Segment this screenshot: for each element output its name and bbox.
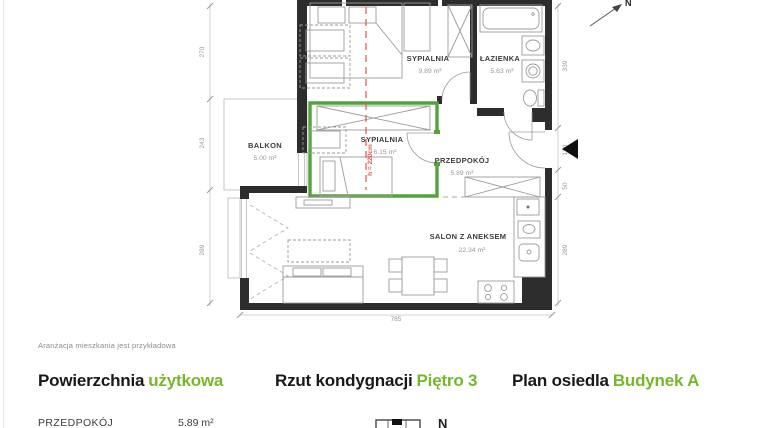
heading-area-black: Powierzchnia: [38, 371, 144, 390]
north-label: N: [625, 0, 632, 8]
heading-area-green: użytkowa: [148, 371, 223, 390]
disclaimer-note: Aranżacja mieszkania jest przykładowa: [38, 341, 176, 350]
bathroom-label: ŁAZIENKA: [480, 54, 521, 63]
floor-plan: 270 243 289 339 130 50 289 785: [192, 0, 652, 335]
bedroom1-furniture: [300, 3, 472, 88]
area-table-value-cell: 5.89 m²: [178, 417, 214, 428]
heading-floor-black: Rzut kondygnacji: [275, 371, 413, 390]
bedroom2-area: 6.15 m²: [373, 149, 397, 156]
dim-right-289: 289: [562, 244, 569, 255]
floorplan-page: 270 243 289 339 130 50 289 785: [0, 0, 760, 428]
heading-estate-black: Plan osiedla: [512, 371, 609, 390]
area-table-room-cell: PRZEDPOKÓJ: [38, 417, 113, 428]
dim-bottom-785: 785: [391, 316, 402, 323]
dim-right-339: 339: [562, 60, 569, 71]
living-label: SALON Z ANEKSEM: [430, 232, 507, 241]
bathroom-area: 5.63 m²: [490, 68, 514, 75]
dim-right-50: 50: [562, 182, 569, 190]
north-arrow-icon: [590, 4, 622, 26]
heading-estate-green: Budynek A: [613, 371, 699, 390]
section-heading-estate: Plan osiedlaBudynek A: [512, 371, 699, 391]
page-left-divider: [3, 0, 4, 428]
hall-furniture: [443, 177, 545, 197]
section-heading-area: Powierzchniaużytkowa: [38, 371, 223, 391]
living-area: 22.34 m²: [459, 247, 487, 254]
heading-floor-green: Piętro 3: [417, 371, 478, 390]
bedroom2-label: SYPIALNIA: [361, 135, 404, 144]
hall-label: PRZEDPOKÓJ: [435, 156, 490, 165]
dim-left-270: 270: [199, 46, 206, 57]
mini-floorplate-icon: [375, 419, 425, 428]
hall-area: 5.89 m²: [450, 170, 474, 177]
living-furniture: [250, 197, 545, 303]
dim-left-289: 289: [199, 244, 206, 255]
mini-north-label: N: [438, 416, 447, 428]
section-heading-floor: Rzut kondygnacjiPiętro 3: [275, 371, 477, 391]
dim-left-243: 243: [199, 137, 206, 148]
green-jamb-top: [434, 130, 440, 134]
balcony-label: BALKON: [248, 141, 282, 150]
bedroom1-label: SYPIALNIA: [407, 54, 450, 63]
balcony-area: 5.00 m²: [253, 155, 277, 162]
bedroom1-area: 9.89 m²: [418, 68, 442, 75]
